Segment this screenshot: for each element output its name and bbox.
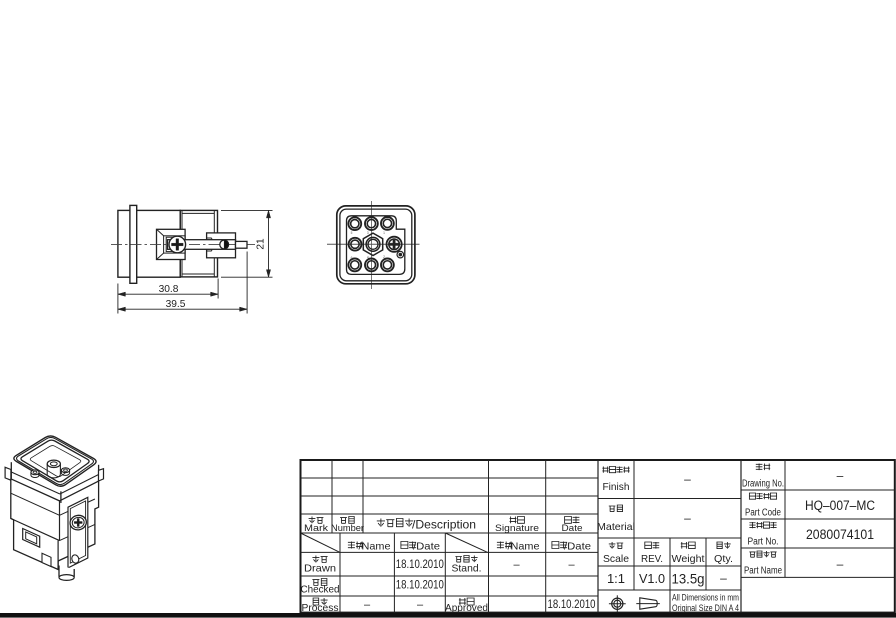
- svg-text:2: 2: [383, 255, 385, 259]
- svg-text:13.5g: 13.5g: [672, 572, 705, 587]
- svg-text:Process: Process: [302, 603, 339, 614]
- svg-text:V1.0: V1.0: [639, 571, 665, 586]
- svg-text:Checked: Checked: [301, 585, 340, 596]
- svg-text:Part No.: Part No.: [748, 537, 779, 548]
- svg-text:Scale: Scale: [603, 553, 629, 565]
- svg-text:18.10.2010: 18.10.2010: [548, 599, 596, 611]
- svg-text:Signature: Signature: [495, 523, 539, 534]
- svg-text:–: –: [684, 472, 691, 486]
- svg-text:39.5: 39.5: [166, 299, 186, 310]
- svg-text:5: 5: [351, 231, 353, 235]
- svg-text:Weight: Weight: [672, 553, 705, 565]
- svg-text:–: –: [684, 511, 691, 525]
- svg-text:Approved: Approved: [445, 603, 488, 614]
- svg-text:Drawing No.: Drawing No.: [742, 479, 784, 490]
- svg-text:6: 6: [351, 256, 353, 260]
- svg-text:Mark: Mark: [304, 523, 328, 534]
- svg-text:2080074101: 2080074101: [806, 527, 874, 542]
- svg-text:–: –: [568, 559, 575, 571]
- svg-text:Finish: Finish: [603, 481, 630, 493]
- svg-text:–: –: [837, 469, 844, 483]
- svg-text:Part Name: Part Name: [744, 566, 782, 577]
- svg-text:/Name: /Name: [359, 541, 391, 553]
- svg-text:HQ–007–MC: HQ–007–MC: [805, 498, 875, 513]
- svg-text:/Name: /Name: [508, 541, 540, 553]
- svg-text:1:1: 1:1: [607, 571, 625, 586]
- svg-text:/Date: /Date: [564, 541, 591, 553]
- svg-text:Material: Material: [597, 522, 635, 533]
- svg-text:18.10.2010: 18.10.2010: [396, 580, 444, 592]
- svg-text:All Dimensions in mm: All Dimensions in mm: [672, 593, 739, 603]
- svg-text:Drawn: Drawn: [304, 563, 336, 575]
- svg-text:1: 1: [383, 231, 385, 235]
- svg-text:/Description: /Description: [412, 518, 476, 532]
- svg-text:7: 7: [350, 238, 352, 242]
- svg-text:4: 4: [367, 255, 369, 259]
- svg-text:/Date: /Date: [413, 541, 440, 553]
- svg-text:–: –: [837, 557, 844, 571]
- svg-text:Qty.: Qty.: [714, 553, 733, 565]
- svg-text:–: –: [513, 559, 520, 571]
- svg-text:–: –: [720, 571, 727, 585]
- svg-text:–: –: [364, 599, 371, 611]
- svg-text:–: –: [417, 599, 424, 611]
- svg-text:30.8: 30.8: [159, 284, 179, 295]
- svg-text:Stand.: Stand.: [452, 563, 482, 575]
- svg-text:Number: Number: [331, 523, 364, 534]
- svg-text:Part Code: Part Code: [745, 508, 781, 519]
- svg-text:21: 21: [256, 238, 267, 250]
- svg-text:REV.: REV.: [641, 553, 663, 565]
- svg-text:3: 3: [367, 231, 369, 235]
- svg-text:18.10.2010: 18.10.2010: [396, 559, 444, 571]
- svg-text:Original Size DIN A 4: Original Size DIN A 4: [672, 603, 739, 613]
- svg-text:Date: Date: [562, 523, 583, 534]
